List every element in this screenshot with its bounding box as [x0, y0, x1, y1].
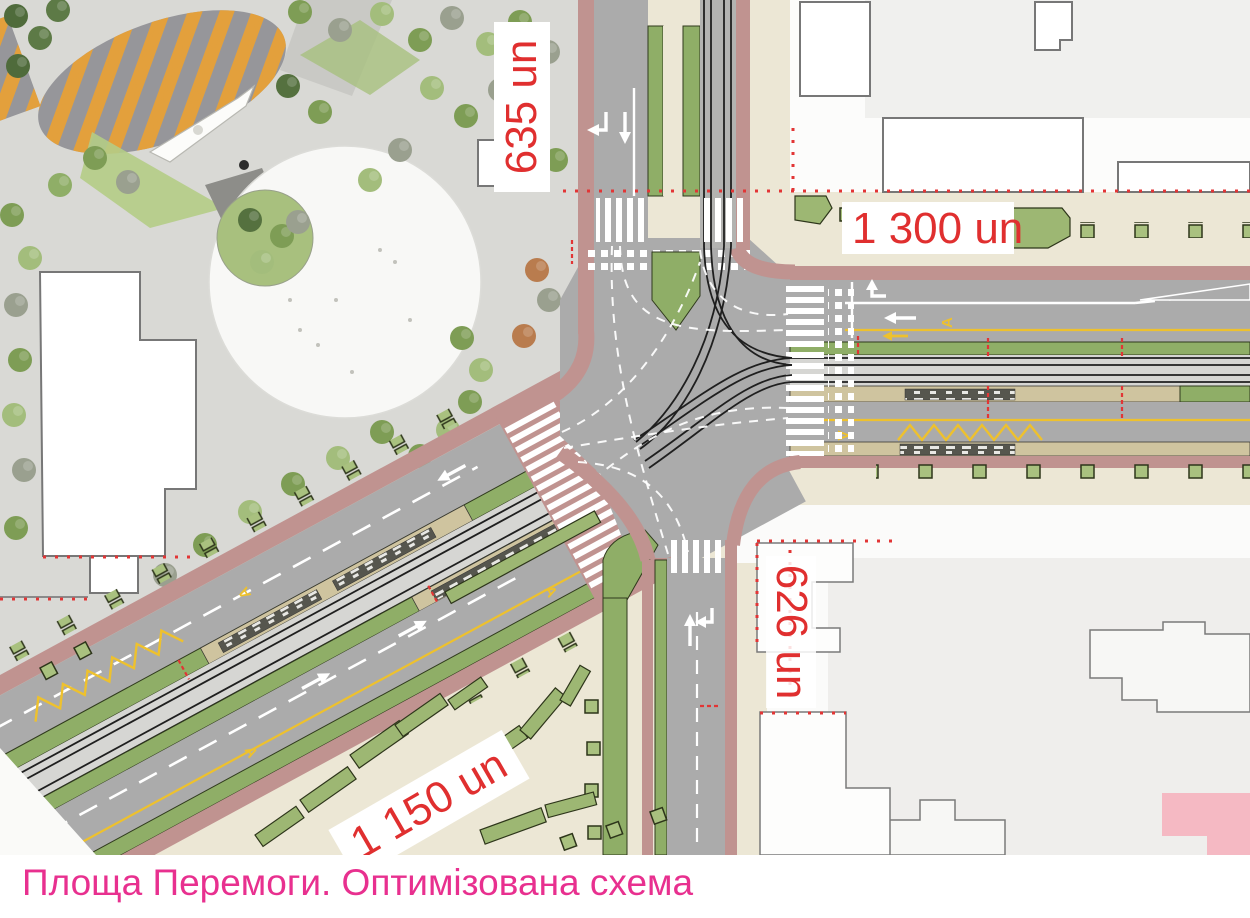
dimension-label-north: 635 un	[497, 40, 546, 175]
buildings-northeast	[790, 0, 1250, 192]
tree-pit	[585, 700, 598, 713]
victory-square-plan-page: А А А	[0, 0, 1250, 918]
roadway	[790, 280, 1250, 342]
sidewalk-edge	[725, 540, 737, 855]
median-green	[1180, 386, 1250, 402]
site-plan-svg: А А А	[0, 0, 1250, 855]
tree-pit	[588, 826, 601, 839]
shelter	[905, 389, 1015, 400]
tram-platform	[790, 442, 1250, 456]
dimension-label-south: 626 un	[767, 565, 816, 700]
bike-crossing-dots	[828, 286, 854, 454]
median-green	[648, 26, 663, 196]
sidewalk-edge	[578, 0, 594, 334]
tree-pits-row	[876, 464, 1250, 480]
median-green	[603, 598, 627, 855]
sidewalk-edge	[790, 266, 1250, 280]
building-footprint	[800, 2, 870, 96]
bus-lane-marking: А	[939, 317, 956, 328]
median-green	[683, 26, 700, 196]
kiosk-icon	[239, 160, 249, 170]
shelter	[900, 444, 1015, 455]
road-south	[585, 530, 737, 855]
crosswalk-south	[666, 540, 724, 573]
building-footprint	[1118, 162, 1250, 192]
building-footprint	[883, 118, 1083, 192]
crosswalk-east	[786, 284, 854, 456]
tree-pit	[587, 742, 600, 755]
dimension-label-east: 1 300 un	[852, 204, 1023, 253]
plan-caption: Площа Перемоги. Оптимізована схема	[22, 862, 1222, 912]
